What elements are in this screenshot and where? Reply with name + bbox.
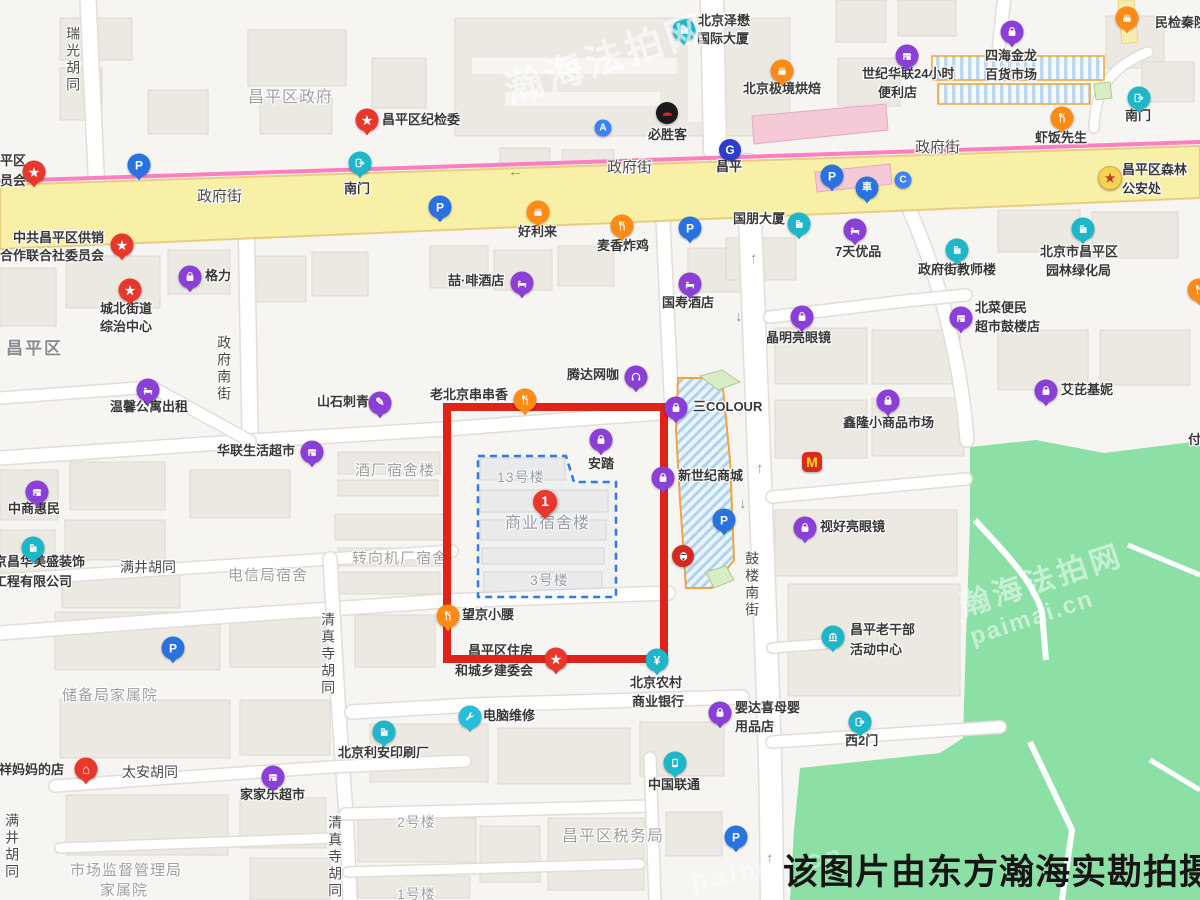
poi-gongxiaoshe-pin[interactable]: ★ (111, 234, 134, 257)
poi-zhefei-hotel-pin[interactable] (511, 272, 534, 295)
poi-parking-5[interactable]: P (162, 637, 185, 660)
poi-chuanchuanxiang-pin[interactable] (514, 389, 537, 412)
poi-maixiang-zhaji-pin[interactable] (611, 215, 634, 238)
poi-guoshou-hotel-pin[interactable] (679, 273, 702, 296)
poi-metro-changping[interactable]: G (719, 139, 741, 161)
poi-anta-pin[interactable] (590, 429, 613, 452)
poi-holiland-pin[interactable] (527, 201, 550, 224)
poi-yingdaxi-pin[interactable] (709, 702, 732, 725)
poi-xiafan-xiansheng-pin[interactable] (1051, 107, 1074, 130)
photo-caption: 该图片由东方瀚海实勘拍摄 (783, 844, 1200, 895)
poi-chengbei-zongzhi-pin[interactable]: ★ (119, 279, 142, 302)
poi-entrance-a[interactable]: A (595, 120, 612, 137)
poi-3colour-pin[interactable] (665, 397, 688, 420)
poi-entrance-c[interactable]: C (895, 172, 912, 189)
poi-geli-pin[interactable] (179, 266, 202, 289)
poi-lian-yinshua-pin[interactable] (373, 721, 396, 744)
poi-xinshiji-shangcheng-pin[interactable] (652, 467, 675, 490)
poi-hualian-chaoshi-pin[interactable] (301, 441, 324, 464)
poi-xi2men-pin[interactable] (849, 711, 872, 734)
poi-food-edge-east[interactable] (1188, 279, 1200, 302)
poi-pizzahut[interactable] (656, 102, 678, 124)
highlight-marker-1[interactable]: 1 (532, 489, 558, 517)
poi-parking-garage[interactable]: 車 (856, 177, 879, 200)
poi-diannao-weixiu-pin[interactable] (459, 706, 482, 729)
poi-nongshang-bank-pin[interactable]: ¥ (646, 649, 669, 672)
poi-mcdonalds[interactable]: M (802, 452, 822, 472)
poi-parking-7[interactable]: P (725, 826, 748, 849)
poi-parking-4[interactable]: P (821, 165, 844, 188)
poi-parking-2[interactable]: P (429, 196, 452, 219)
poi-tengda-wangka-pin[interactable] (625, 366, 648, 389)
poi-nanmen-ne-pin[interactable] (1128, 87, 1151, 110)
poi-7tian-pin[interactable] (844, 219, 867, 242)
poi-yuanlin-lvhua-pin[interactable] (1072, 218, 1095, 241)
poi-zemao-daxia-pin[interactable] (673, 19, 696, 42)
poi-food-edge-ne[interactable] (1116, 7, 1139, 30)
poi-jiajiale-pin[interactable] (262, 766, 285, 789)
poi-wenxin-gongyu-pin[interactable] (137, 379, 160, 402)
poi-gov-edge-pin[interactable]: ★ (23, 161, 46, 184)
poi-zhongshang-huimin-pin[interactable] (26, 481, 49, 504)
marker-layer: 1 ★★★★★⌂✎¥PPPPPPP車ACGM★ (0, 0, 1200, 900)
poi-laoganbu-zhongxin-pin[interactable] (822, 626, 845, 649)
poi-kfc[interactable] (672, 545, 694, 567)
poi-shihaoliang-pin[interactable] (794, 517, 817, 540)
poi-sihaijinlong-pin[interactable] (1001, 21, 1024, 44)
poi-parking-1[interactable]: P (128, 154, 151, 177)
poi-zhufang-jianwei-pin[interactable]: ★ (545, 648, 568, 671)
poi-beicai-bianmin-pin[interactable] (950, 307, 973, 330)
poi-liantong-pin[interactable] (664, 752, 687, 775)
highlight-marker-number: 1 (532, 493, 558, 509)
poi-wangjing-xiaoyao-pin[interactable] (437, 605, 460, 628)
poi-parking-6[interactable]: P (713, 509, 736, 532)
poi-xinlong-shichang-pin[interactable] (877, 390, 900, 413)
poi-jixiang-mama-pin[interactable]: ⌂ (75, 758, 98, 781)
poi-guopeng-daxia-pin[interactable] (788, 213, 811, 236)
poi-shijihualian-pin[interactable] (896, 45, 919, 68)
poi-jijianwei-pin[interactable]: ★ (356, 109, 379, 132)
poi-jingchang-zhuangshi-pin[interactable] (22, 537, 45, 560)
poi-shanshi-ciqing-pin[interactable]: ✎ (369, 392, 392, 415)
poi-nanmen-west-pin[interactable] (349, 152, 372, 175)
poi-jijing-hongbei-pin[interactable] (771, 60, 794, 83)
poi-aipijini-pin[interactable] (1035, 380, 1058, 403)
map-canvas[interactable]: 昌平区纪检委中共昌平区供销合作联合社委员会城北街道综治中心格力温馨公寓出租山石刺… (0, 0, 1200, 900)
poi-senlin-gongan-badge[interactable]: ★ (1098, 166, 1122, 190)
poi-jingmingliang-pin[interactable] (791, 306, 814, 329)
poi-parking-3[interactable]: P (679, 217, 702, 240)
poi-jiaoshilou-pin[interactable] (946, 239, 969, 262)
